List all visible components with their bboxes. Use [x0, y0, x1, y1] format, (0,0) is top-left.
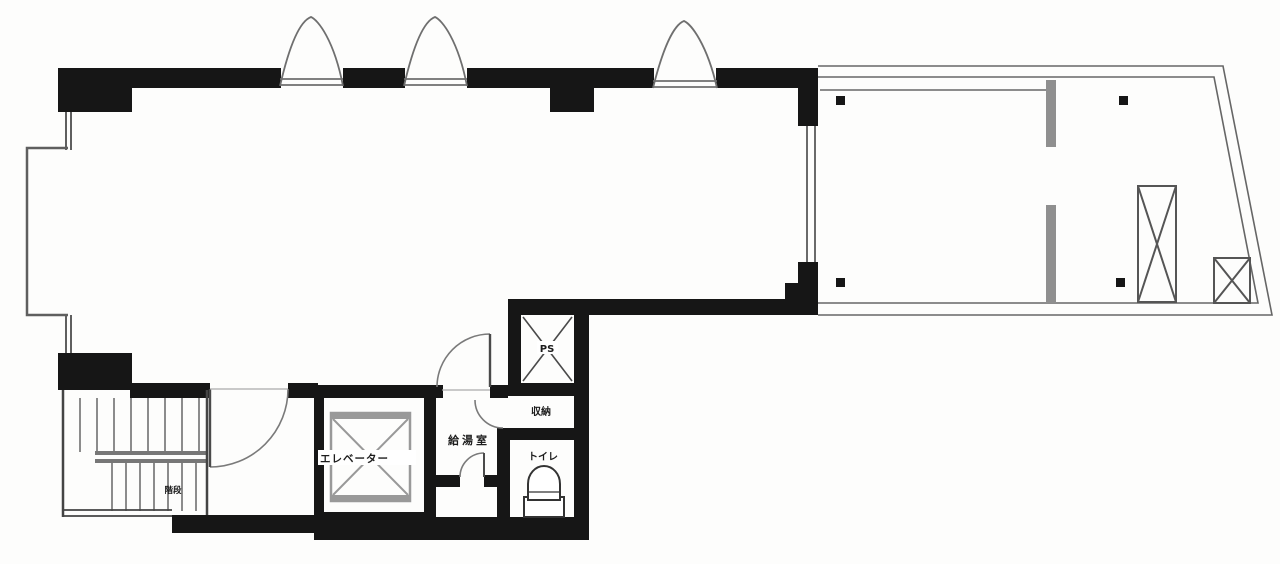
- ps-label: PS: [540, 344, 555, 355]
- wall-top-left-block: [58, 68, 132, 112]
- left-bay-window: [27, 112, 71, 353]
- wall-bottom-outer-2: [314, 517, 589, 540]
- wall-bottom-right: [508, 299, 790, 315]
- wall-elevator-right: [424, 385, 436, 527]
- balcony-window: [807, 126, 815, 262]
- floor-plan-canvas: 階段 エレベーター: [0, 0, 1280, 564]
- wall-left-thin-lower: [66, 315, 71, 353]
- wall-top-seg2: [343, 68, 405, 88]
- window-sill-1: [280, 79, 343, 85]
- balcony-divider: [1046, 80, 1056, 303]
- floor-plan-drawing: 階段 エレベーター: [0, 0, 1280, 564]
- window-sill-3: [653, 81, 717, 87]
- balcony-outer-edge: [818, 66, 1272, 315]
- balcony-inner-edge: [818, 77, 1258, 303]
- kitchenette-door-arc-icon: [437, 334, 490, 390]
- wall-bottom-outer-1: [172, 515, 318, 533]
- toilet-label: トイレ: [528, 451, 558, 463]
- kitchenette-room: 給湯室: [448, 433, 490, 447]
- sliding-window-lines: [807, 126, 815, 262]
- toilet-door-arc-icon: [460, 453, 484, 477]
- walls: [58, 68, 818, 540]
- wall-top-seg3: [467, 68, 654, 88]
- storage-label: 収納: [531, 405, 551, 418]
- wall-ps-right: [574, 299, 589, 396]
- stairs-bottom-wall: [62, 510, 172, 516]
- balcony-column-dot-icon: [836, 96, 1128, 287]
- kitchenette-label: 給湯室: [448, 433, 490, 447]
- window-arch-icon: [404, 17, 467, 86]
- bay-window-outline: [27, 148, 68, 315]
- stairs-room: 階段: [62, 390, 207, 517]
- stairs-label: 階段: [164, 485, 182, 496]
- wall-service-top-4: [490, 385, 508, 398]
- balcony-terrace: [818, 66, 1272, 315]
- toilet-room: トイレ: [524, 451, 564, 517]
- elevator-room: エレベーター: [318, 413, 416, 501]
- wall-ps-left: [508, 299, 521, 396]
- storage-door-arc-icon: [475, 400, 503, 428]
- wall-service-top-1: [130, 383, 210, 398]
- wall-top-pier: [550, 86, 594, 112]
- storage-room: 収納: [531, 405, 551, 418]
- wall-top-seg1: [130, 68, 281, 88]
- window-arch-icon: [653, 21, 717, 88]
- wall-right-upper-corner: [798, 68, 818, 126]
- ps-shaft: PS: [523, 317, 572, 381]
- wall-storage-toilet-divider: [508, 428, 576, 440]
- wall-service-right: [574, 383, 589, 540]
- wall-elevator-top: [314, 385, 436, 398]
- window-arch-icon: [280, 17, 343, 86]
- evacuation-hatch-x-icon: [1138, 186, 1176, 302]
- hall-door-arc-icon: [210, 389, 288, 467]
- wall-kitchenette-mid-left: [434, 475, 460, 487]
- wall-service-top-2: [288, 383, 318, 398]
- hatch-box-x-icon: [1214, 258, 1250, 303]
- wall-left-thin-upper: [66, 112, 71, 150]
- toilet-bowl-icon: [524, 466, 564, 517]
- wall-left-lower-block: [58, 353, 132, 390]
- window-sill-2: [404, 79, 467, 85]
- stair-landing-rail: [95, 451, 207, 463]
- elevator-label: エレベーター: [320, 453, 389, 465]
